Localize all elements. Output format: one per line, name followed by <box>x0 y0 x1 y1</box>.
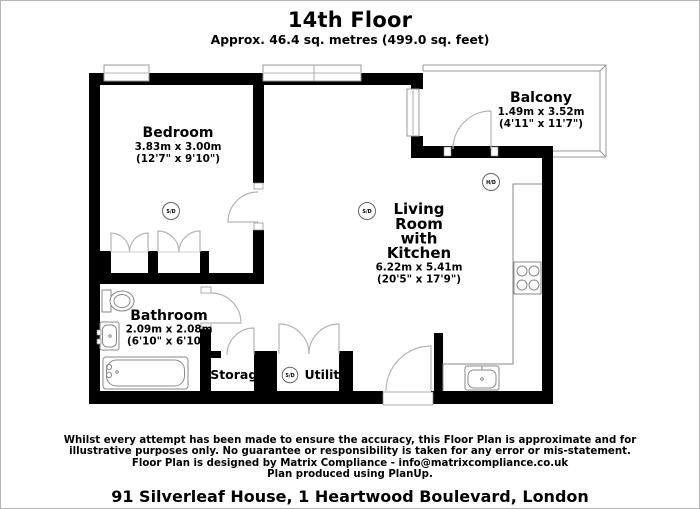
bedroom-dims-metric: 3.83m x 3.00m <box>135 141 222 153</box>
disclaimer-line-3: Floor Plan is designed by Matrix Complia… <box>1 458 699 469</box>
smoke-detector-bedroom-label: S/D <box>166 209 175 215</box>
entrance-door <box>386 346 431 391</box>
wardrobe-stub-1 <box>100 251 111 273</box>
balcony-door-notch-left <box>444 147 451 156</box>
wardrobe-stub-2 <box>148 251 158 273</box>
wall-under-balcony <box>411 146 553 158</box>
smoke-detector-living-label: S/D <box>362 209 371 215</box>
basin-tap-hot <box>97 330 101 335</box>
wardrobe1-door-left <box>111 233 130 252</box>
smoke-detector-utility-label: S/D <box>285 373 294 379</box>
wardrobe1-door-right <box>130 233 149 252</box>
utility-door-left <box>279 324 309 354</box>
entrance-threshold <box>383 392 433 405</box>
bathroom-label: Bathroom <box>130 308 208 324</box>
balcony-label: Balcony <box>510 90 572 106</box>
floorplan-page: 14th Floor Approx. 46.4 sq. metres (499.… <box>0 0 700 509</box>
wall-balcony-left-lower <box>411 136 423 158</box>
basin-tap-cold <box>97 339 101 344</box>
wall-balcony-left-upper <box>411 73 423 89</box>
bathroom-door <box>211 293 241 323</box>
storage-label: Storage <box>210 367 266 382</box>
balcony-dims-imperial: (4'11" x 11'7") <box>499 118 583 130</box>
disclaimer-line-2: illustrative purposes only. No guarantee… <box>1 446 699 457</box>
wall-storage-stub <box>211 351 221 358</box>
disclaimer-line-4: Plan produced using PlanUp. <box>1 469 699 480</box>
bedroom-door-notch-bottom <box>254 223 263 230</box>
living-label-line4: Kitchen <box>387 244 451 262</box>
utility-label: Utility <box>304 367 347 382</box>
wall-right <box>542 146 553 404</box>
disclaimer-line-1: Whilst every attempt has been made to en… <box>1 435 699 446</box>
bedroom-dims-imperial: (12'7" x 9'10") <box>136 153 220 165</box>
wall-left <box>89 73 100 404</box>
wardrobe-stub-3 <box>200 251 209 273</box>
utility-door-right <box>309 324 339 354</box>
wall-bottom-right <box>431 391 553 404</box>
wall-bedroom-bottom <box>89 273 264 284</box>
floor-plan-canvas: S/D S/D H/D S/D Bedroom 3.83m x 3.00m (1… <box>1 1 700 509</box>
bedroom-door <box>228 192 258 222</box>
wall-bottom-left <box>89 391 383 404</box>
living-dims-imperial: (20'5" x 17'9") <box>377 274 461 286</box>
living-dims-metric: 6.22m x 5.41m <box>376 262 463 274</box>
balcony-door <box>453 111 491 149</box>
wardrobe2-door-right <box>179 231 200 252</box>
heat-detector-living-label: H/D <box>486 180 496 186</box>
storage-door <box>227 328 254 355</box>
bedroom-label: Bedroom <box>143 125 214 141</box>
bathroom-dims-metric: 2.09m x 2.08m <box>126 324 213 336</box>
wall-bedroom-right-upper <box>253 73 264 183</box>
bedroom-door-notch-top <box>254 183 263 189</box>
room-labels: Bedroom 3.83m x 3.00m (12'7" x 9'10") Ba… <box>126 90 585 382</box>
plan-footer: Whilst every attempt has been made to en… <box>1 435 699 506</box>
disclaimer: Whilst every attempt has been made to en… <box>1 435 699 481</box>
wardrobe2-door-left <box>158 231 179 252</box>
balcony-door-notch-right <box>491 147 498 156</box>
wall-entry-stub <box>434 333 443 391</box>
bathroom-dims-imperial: (6'10" x 6'10") <box>127 336 211 348</box>
kitchen <box>443 184 542 391</box>
balcony-dims-metric: 1.49m x 3.52m <box>498 106 585 118</box>
bathroom-door-notch-top <box>201 287 211 293</box>
property-address: 91 Silverleaf House, 1 Heartwood Bouleva… <box>1 487 699 506</box>
